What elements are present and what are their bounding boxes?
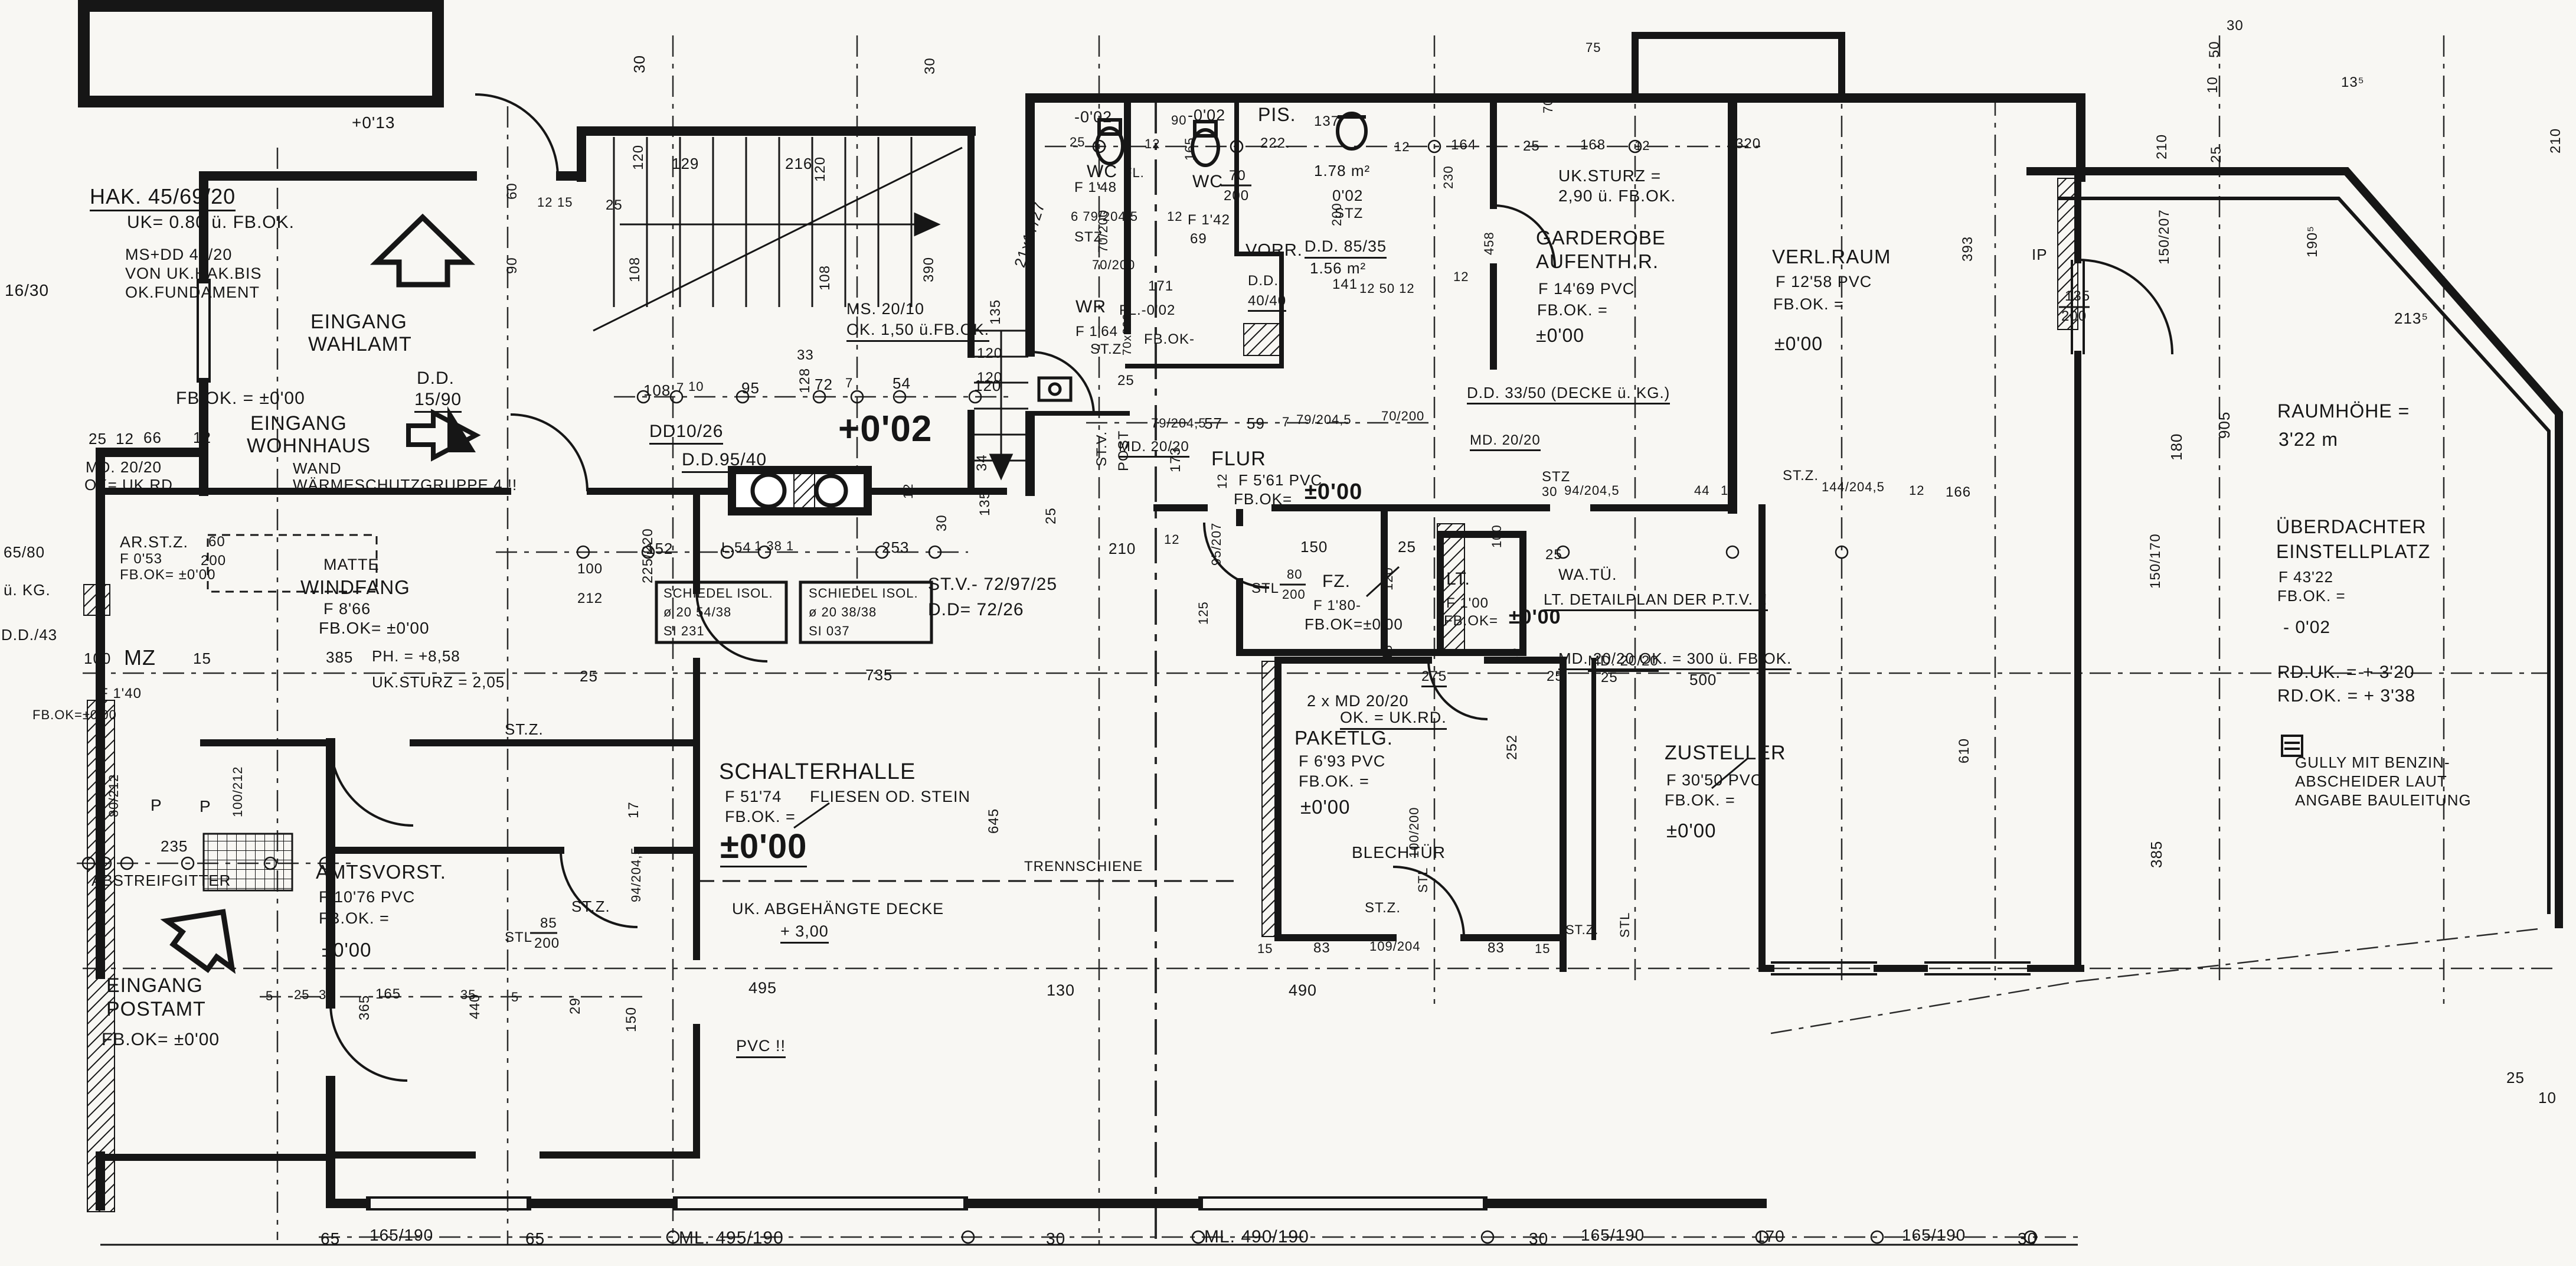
plan-label-30: 30 xyxy=(923,57,937,74)
plan-label-200: 200 xyxy=(2061,309,2087,324)
plan-label-16-30: 16/30 xyxy=(5,282,49,299)
plan-label-0-00: ±0'00 xyxy=(1305,481,1362,504)
plan-label-0-02: - 0'02 xyxy=(2283,619,2330,637)
plan-label-lt: LT. xyxy=(1446,570,1470,589)
plan-label-15: 15 xyxy=(1535,942,1550,955)
plan-label-200: 200 xyxy=(1224,189,1249,203)
plan-label-33: 33 xyxy=(797,348,814,363)
plan-label-matte: MATTE xyxy=(323,557,380,573)
plan-label-fliesen-od-stein: FLIESEN OD. STEIN xyxy=(810,789,970,805)
plan-label-17: 17 xyxy=(627,801,641,818)
plan-label-12-50-12: 12 50 12 xyxy=(1359,282,1415,295)
plan-label-365: 365 xyxy=(358,995,372,1020)
plan-label-stl: STL xyxy=(505,931,532,945)
plan-label-610: 610 xyxy=(1957,738,1972,763)
plan-label-210: 210 xyxy=(2155,134,2169,159)
plan-label-25: 25 xyxy=(2506,1070,2525,1086)
plan-label-100-200: 100/200 xyxy=(1408,807,1421,858)
plan-label-495: 495 xyxy=(748,980,777,997)
plan-label-390: 390 xyxy=(922,257,936,282)
plan-label-wand: WAND xyxy=(293,461,341,477)
plan-label-150-170: 150/170 xyxy=(2149,533,2163,589)
plan-label-12: 12 xyxy=(1634,139,1650,152)
plan-label-252: 252 xyxy=(1505,735,1519,760)
plan-label-125: 125 xyxy=(1197,601,1210,625)
plan-label-12: 12 xyxy=(1167,210,1182,223)
plan-label-275: 275 xyxy=(1421,670,1447,687)
plan-label-25: 25 xyxy=(1398,539,1416,555)
plan-label-einstellplatz: EINSTELLPLATZ xyxy=(2276,542,2430,562)
plan-label-72: 72 xyxy=(815,377,833,393)
plan-label-645: 645 xyxy=(987,808,1001,834)
plan-label-uk-sturz: UK.STURZ = xyxy=(1558,168,1661,185)
plan-label-12: 12 xyxy=(1216,474,1229,489)
plan-label-135: 135 xyxy=(989,299,1003,325)
plan-label-f-8-66: F 8'66 xyxy=(323,601,371,618)
plan-label-166: 166 xyxy=(1946,485,1971,500)
plan-label-54: 54 xyxy=(893,376,911,391)
plan-label-144-204-5: 144/204,5 xyxy=(1822,481,1885,494)
plan-label-wc: WC xyxy=(1087,163,1117,181)
plan-label-490: 490 xyxy=(1289,983,1317,999)
plan-label-94-204-5: 94/204,5 xyxy=(1564,484,1620,497)
plan-label-230: 230 xyxy=(1442,165,1455,189)
plan-label-ü-kg: ü. KG. xyxy=(4,582,51,598)
plan-label-120: 120 xyxy=(977,347,1002,361)
plan-label-141: 141 xyxy=(1332,278,1358,292)
plan-label-pis: PIS. xyxy=(1258,105,1296,125)
plan-label-wr: WR xyxy=(1075,298,1106,316)
plan-label-200: 200 xyxy=(1331,203,1343,226)
plan-label-f-1-00: F 1'00 xyxy=(1446,596,1489,611)
plan-label-von-uk-hak-bis: VON UK.HAK.BIS xyxy=(125,266,262,282)
plan-label-f-14-69-pvc: F 14'69 PVC xyxy=(1538,281,1634,298)
plan-label-si-037: SI 037 xyxy=(809,625,850,638)
plan-label-fb-ok: FB.OK. = xyxy=(319,911,390,927)
plan-label-10: 10 xyxy=(2206,76,2220,93)
plan-label-fb-ok: FB.OK- xyxy=(1144,332,1195,347)
plan-label-210: 210 xyxy=(2549,128,2563,154)
plan-label-0-00: ±0'00 xyxy=(1509,607,1561,628)
plan-label-7: 7 xyxy=(676,381,684,394)
plan-label-st-v-72-97-25: ST.V.- 72/97/25 xyxy=(928,576,1057,594)
plan-label-d-d: D.D. xyxy=(1248,274,1279,288)
plan-label-fb-ok: FB.OK. = xyxy=(1537,302,1608,319)
plan-label-15: 15 xyxy=(557,196,573,209)
plan-label-25: 25 xyxy=(2209,146,2224,163)
plan-label-f-30-50-pvc: F 30'50 PVC xyxy=(1666,772,1763,789)
plan-label-25: 25 xyxy=(1547,670,1564,684)
plan-label-120: 120 xyxy=(813,156,828,182)
plan-label-30: 30 xyxy=(1542,485,1557,498)
plan-label-stz: STZ xyxy=(1542,470,1570,484)
plan-label-post: POST xyxy=(1117,430,1131,471)
plan-label-st-z: ST.Z. xyxy=(571,899,610,915)
plan-label-f-1-40: F 1'40 xyxy=(99,687,142,701)
plan-label-190: 190⁵ xyxy=(2306,226,2320,257)
plan-label-70-200: 70/200 xyxy=(1092,259,1135,272)
plan-label-200: 200 xyxy=(201,554,226,568)
plan-label-165: 165 xyxy=(1184,137,1197,161)
plan-label-170: 170 xyxy=(1756,1228,1785,1245)
plan-label-69: 69 xyxy=(1190,232,1207,246)
plan-label-fb-ok-0-00: FB.OK= ±0'00 xyxy=(319,620,430,637)
plan-label-79-204-5: 79/204,5 xyxy=(1296,413,1352,426)
plan-label-0-00: ±0'00 xyxy=(1774,334,1823,354)
plan-label-253: 253 xyxy=(882,540,909,556)
plan-label-440: 440 xyxy=(468,994,482,1019)
plan-label-94-204-5: 94/204,5 xyxy=(630,847,643,902)
plan-label-überdachter: ÜBERDACHTER xyxy=(2276,517,2427,537)
plan-label-25: 25 xyxy=(606,198,623,213)
plan-label-ms-dd-45-20: MS+DD 45/20 xyxy=(125,247,232,263)
plan-label-25: 25 xyxy=(89,431,107,447)
plan-label-59: 59 xyxy=(1247,416,1265,432)
plan-label-66: 66 xyxy=(143,430,162,446)
labels-layer: HAK. 45/69/20UK= 0.80 ü. FB.OK.MS+DD 45/… xyxy=(0,0,2576,1266)
plan-label-210: 210 xyxy=(1109,541,1136,557)
plan-label-vorr: VORR. xyxy=(1245,242,1303,260)
plan-label-79-204-5: 79/204,5 xyxy=(1151,417,1207,430)
plan-label-65: 65 xyxy=(321,1231,340,1248)
plan-label-st-z: ST.Z. xyxy=(1365,901,1401,915)
plan-label-34: 34 xyxy=(975,454,989,471)
floor-plan-page: HAK. 45/69/20UK= 0.80 ü. FB.OK.MS+DD 45/… xyxy=(0,0,2576,1266)
plan-label-70-200: 70/200 xyxy=(1097,210,1110,253)
plan-label-5: 5 xyxy=(511,991,519,1004)
plan-label-165-190: 165/190 xyxy=(1902,1227,1966,1244)
plan-label-fb-ok-0-00: FB.OK=±0'00 xyxy=(1305,616,1403,632)
plan-label-0-02: 0'02 xyxy=(1332,188,1363,204)
plan-label-amtsvorst: AMTSVORST. xyxy=(316,862,446,882)
plan-label-12: 12 xyxy=(1394,141,1410,154)
plan-label-5: 5 xyxy=(266,990,273,1003)
plan-label-168: 168 xyxy=(1580,138,1606,152)
plan-label-flur: FLUR xyxy=(1211,449,1266,469)
plan-label-0-00: ±0'00 xyxy=(1666,821,1716,841)
plan-label-stl: STL xyxy=(1619,912,1632,938)
plan-label-d-d-33-50-decke-ü-kg: D.D. 33/50 (DECKE ü. KG.) xyxy=(1467,385,1670,404)
plan-label-30: 30 xyxy=(1529,1231,1548,1248)
plan-label-165-190: 165/190 xyxy=(370,1227,433,1244)
plan-label-25: 25 xyxy=(1601,671,1618,685)
plan-label-12: 12 xyxy=(1145,138,1160,151)
plan-label-135: 135 xyxy=(2065,289,2090,304)
plan-label-fb-ok-0-00: FB.OK. = ±0'00 xyxy=(176,390,305,408)
plan-label-165: 165 xyxy=(375,987,401,1001)
plan-label-st-z: ST.Z xyxy=(1090,342,1122,357)
plan-label-3-00: + 3,00 xyxy=(780,924,829,944)
plan-label-70: 70 xyxy=(1229,169,1246,183)
plan-label-12: 12 xyxy=(1453,270,1469,283)
plan-label-paketlg: PAKETLG. xyxy=(1294,728,1393,748)
plan-label-0-02: +0'02 xyxy=(838,410,932,448)
plan-label-md-20-20: MD. 20/20 xyxy=(1588,654,1659,672)
plan-label-ar-st-z: AR.ST.Z. xyxy=(120,534,188,551)
plan-label-129: 129 xyxy=(672,156,699,172)
plan-label-120: 120 xyxy=(1382,567,1395,590)
plan-label-fb-ok: FB.OK. = xyxy=(725,809,796,825)
plan-label-1-56-m: 1.56 m² xyxy=(1310,260,1366,276)
plan-label-ok-uk-rd: OK= UK.RD xyxy=(84,477,173,493)
plan-label-f-6-93-pvc: F 6'93 PVC xyxy=(1299,753,1385,770)
plan-label-90: 90 xyxy=(505,257,519,274)
plan-label-rd-ok-3-38: RD.OK. = + 3'38 xyxy=(2277,687,2415,706)
plan-label-fb-ok: FB.OK= xyxy=(1444,614,1498,628)
plan-label-25: 25 xyxy=(1507,648,1520,663)
plan-label-rd-uk-3-20: RD.UK. = + 3'20 xyxy=(2277,664,2415,682)
plan-label-10: 10 xyxy=(2538,1090,2557,1106)
plan-label-f-10-76-pvc: F 10'76 PVC xyxy=(319,889,415,906)
plan-label-st-z: ST.Z. xyxy=(505,722,544,738)
plan-label-57: 57 xyxy=(1204,416,1222,432)
plan-label-fz: FZ. xyxy=(1322,573,1351,591)
plan-label-garderobe: GARDEROBE xyxy=(1536,228,1666,248)
plan-label-7: 7 xyxy=(845,377,853,390)
plan-label-120: 120 xyxy=(974,378,1001,394)
plan-label-30: 30 xyxy=(2227,19,2244,33)
plan-label-raumhöhe: RAUMHÖHE = xyxy=(2277,402,2410,421)
plan-label-md-20-20: MD. 20/20 xyxy=(86,459,162,475)
plan-label-15: 15 xyxy=(193,651,211,667)
plan-label-50: 50 xyxy=(2208,41,2222,58)
plan-label-uk-abgehängte-decke: UK. ABGEHÄNGTE DECKE xyxy=(732,901,944,918)
plan-label-f-1-64: F 1'64 xyxy=(1075,325,1118,339)
plan-label-80: 80 xyxy=(1287,568,1302,581)
plan-label-eingang: EINGANG xyxy=(106,975,203,996)
plan-label-st-z: ST.Z. xyxy=(1565,924,1598,937)
plan-label-si-231: SI 231 xyxy=(663,625,705,638)
plan-label-12: 12 xyxy=(1164,533,1179,546)
plan-label-212: 212 xyxy=(577,592,603,606)
plan-label-12: 12 xyxy=(116,431,134,447)
plan-label-mz: MZ xyxy=(124,647,156,669)
plan-label-uk-sturz-2-05: UK.STURZ = 2,05 xyxy=(372,674,505,690)
plan-label-d-d-43: D.D./43 xyxy=(1,627,57,643)
plan-label-120: 120 xyxy=(632,145,646,170)
plan-label-95-207: 95/207 xyxy=(1210,523,1223,566)
plan-label-f-1-42: F 1'42 xyxy=(1188,213,1230,227)
plan-label-320: 320 xyxy=(1735,137,1761,151)
plan-label-44: 44 xyxy=(1694,484,1709,497)
plan-label-150: 150 xyxy=(1300,539,1328,555)
plan-label-83: 83 xyxy=(1488,941,1505,955)
plan-label-30: 30 xyxy=(935,514,949,531)
plan-label-85: 85 xyxy=(540,916,557,931)
plan-label-150: 150 xyxy=(625,1007,639,1032)
plan-label-200: 200 xyxy=(534,937,560,951)
plan-label-20-54-38: ø 20 54/38 xyxy=(663,606,731,619)
plan-label-verl-raum: VERL.RAUM xyxy=(1772,247,1891,267)
plan-label-108: 108 xyxy=(628,257,642,282)
plan-label-fb-ok-0-00: FB.OK= ±0'00 xyxy=(102,1031,220,1049)
plan-label-fb-ok: FB.OK. = xyxy=(2277,588,2346,604)
plan-label-29: 29 xyxy=(568,997,583,1014)
plan-label-ip: IP xyxy=(2032,247,2048,263)
plan-label-70x200: 70x200 xyxy=(1122,313,1133,355)
plan-label-wohnhaus: WOHNHAUS xyxy=(247,436,371,456)
plan-label-md-20-20: MD. 20/20 xyxy=(1470,433,1541,451)
plan-label-30: 30 xyxy=(2018,1231,2037,1248)
plan-label-60: 60 xyxy=(505,182,519,200)
plan-label-angabe-bauleitung: ANGABE BAULEITUNG xyxy=(2295,792,2472,808)
plan-label-137: 137 xyxy=(1314,115,1339,129)
plan-label-150-207: 150/207 xyxy=(2157,209,2172,265)
plan-label-458: 458 xyxy=(1483,231,1496,255)
plan-label-100: 100 xyxy=(84,651,111,667)
plan-label-dd10-26: DD10/26 xyxy=(649,423,723,445)
plan-label-abstreifgitter: ABSTREIFGITTER xyxy=(91,873,231,889)
plan-label-ok-1-50-ü-fb-ok: OK. 1,50 ü.FB.OK. xyxy=(846,322,989,342)
plan-label-hak-45-69-20: HAK. 45/69/20 xyxy=(90,186,236,211)
plan-label-171: 171 xyxy=(1148,279,1173,293)
plan-label-12: 12 xyxy=(1721,484,1736,497)
plan-label-500: 500 xyxy=(1689,672,1717,688)
plan-label-35: 35 xyxy=(319,988,334,1001)
plan-label-wärmeschutzgruppe-4: WÄRMESCHUTZGRUPPE 4 !! xyxy=(293,477,517,493)
plan-label-ml-490-190: ML. 490/190 xyxy=(1204,1228,1309,1247)
plan-label-blechtür: BLECHTÜR xyxy=(1352,844,1446,862)
plan-label-15: 15 xyxy=(1381,645,1394,660)
plan-label-70: 70 xyxy=(1542,98,1555,113)
plan-label-stl: STL xyxy=(1417,867,1430,893)
plan-label-25: 25 xyxy=(1117,374,1135,388)
plan-label-eingang: EINGANG xyxy=(310,312,407,332)
plan-label-25: 25 xyxy=(1070,136,1085,149)
plan-label-lt-detailplan-der-p-t-v: LT. DETAILPLAN DER P.T.V. !! xyxy=(1544,592,1768,611)
plan-label-f-51-74: F 51'74 xyxy=(725,789,782,805)
plan-label-2-90-ü-fb-ok: 2,90 ü. FB.OK. xyxy=(1558,188,1676,205)
plan-label-213: 213⁵ xyxy=(2394,311,2428,327)
plan-label-235: 235 xyxy=(161,838,188,854)
plan-label-windfang: WINDFANG xyxy=(300,577,410,598)
plan-label-21x17-27: 21x17/27 xyxy=(1012,200,1048,270)
plan-label-abscheider-laut: ABSCHEIDER LAUT xyxy=(2295,774,2447,789)
plan-label-fb-ok-0-00: FB.OK= ±0'00 xyxy=(120,568,216,582)
plan-label-ph-8-58: PH. = +8,58 xyxy=(372,648,460,664)
plan-label-12: 12 xyxy=(537,196,553,209)
plan-label-postamt: POSTAMT xyxy=(106,999,206,1020)
plan-label-20-38-38: ø 20 38/38 xyxy=(809,606,877,619)
plan-label-1-78-m: 1.78 m² xyxy=(1314,163,1370,179)
plan-label-109-204: 109/204 xyxy=(1369,940,1421,953)
plan-label-735: 735 xyxy=(865,667,893,683)
plan-label-ml-495-190: ML. 495/190 xyxy=(679,1229,784,1248)
plan-label-0-00: ±0'00 xyxy=(1536,326,1584,345)
plan-label-2-x-md-20-20: 2 x MD 20/20 xyxy=(1307,693,1409,710)
plan-label-aufenth-r: AUFENTH.R. xyxy=(1536,252,1659,272)
plan-label-st-v: ST.V. xyxy=(1095,431,1109,466)
plan-label-pvc: PVC !! xyxy=(736,1038,786,1058)
plan-label-128: 128 xyxy=(798,368,812,393)
plan-label-uk-0-80-ü-fb-ok: UK= 0.80 ü. FB.OK. xyxy=(127,214,295,232)
plan-label-1-38-1: 1 38 1 xyxy=(754,540,794,553)
plan-label-95: 95 xyxy=(741,380,760,396)
plan-label-75: 75 xyxy=(1586,41,1601,54)
plan-label-200: 200 xyxy=(1282,588,1306,601)
plan-label-173: 173 xyxy=(1169,447,1183,472)
plan-label-80-212: 80/212 xyxy=(107,774,120,817)
plan-label-385: 385 xyxy=(2149,841,2165,868)
plan-label-d-d-95-40: D.D.95/40 xyxy=(682,451,767,473)
plan-label-f-12-58-pvc: F 12'58 PVC xyxy=(1776,274,1872,291)
plan-label-164: 164 xyxy=(1451,138,1476,152)
plan-label-7: 7 xyxy=(1282,416,1290,429)
plan-label-108: 108 xyxy=(818,265,832,291)
plan-label-p: P xyxy=(151,797,162,814)
plan-label-12: 12 xyxy=(902,484,915,499)
plan-label-25: 25 xyxy=(1523,139,1540,154)
plan-label-0-02: -0'02 xyxy=(1188,107,1225,124)
plan-label-eingang: EINGANG xyxy=(250,413,347,434)
plan-label-222: 222. xyxy=(1260,136,1290,151)
plan-label-13: 13⁵ xyxy=(2341,76,2365,90)
plan-label-st-z: ST.Z. xyxy=(1783,469,1819,483)
plan-label-25: 25 xyxy=(580,668,598,684)
plan-label-70-200: 70/200 xyxy=(1381,410,1424,423)
plan-label-65: 65 xyxy=(525,1231,545,1248)
plan-label-65-80: 65/80 xyxy=(4,544,45,560)
plan-label-25: 25 xyxy=(1044,507,1058,524)
plan-label-15-90: 15/90 xyxy=(414,391,462,413)
plan-label-30: 30 xyxy=(632,55,648,73)
plan-label-393: 393 xyxy=(1961,236,1975,262)
plan-label-90: 90 xyxy=(1171,114,1186,127)
plan-label-gully-mit-benzin: GULLY MIT BENZIN- xyxy=(2295,755,2450,771)
plan-label-108: 108 xyxy=(643,383,671,399)
plan-label-30: 30 xyxy=(1046,1231,1065,1248)
plan-label-d-d: D.D. xyxy=(417,370,455,388)
plan-label-wa-tü: WA.TÜ. xyxy=(1558,567,1617,583)
plan-label-83: 83 xyxy=(1313,941,1331,955)
plan-label-0-02: -0'02 xyxy=(1074,109,1112,126)
plan-label-10: 10 xyxy=(688,380,704,393)
plan-label-0-00: ±0'00 xyxy=(1300,797,1350,817)
plan-label-165-190: 165/190 xyxy=(1581,1227,1645,1244)
plan-label-d-d-72-26: D.D= 72/26 xyxy=(928,601,1024,619)
plan-label-3-22-m: 3'22 m xyxy=(2278,430,2338,449)
plan-label-100: 100 xyxy=(1490,524,1503,548)
plan-label-fb-ok: FB.OK. = xyxy=(1299,774,1369,790)
plan-label-fb-ok: FB.OK. = xyxy=(1773,296,1844,313)
plan-label-schiedel-isol: SCHIEDEL ISOL. xyxy=(809,587,918,600)
plan-label-40-40: 40/40 xyxy=(1248,294,1286,312)
plan-label-fb-ok-0-00: FB.OK=±0'00 xyxy=(32,709,117,722)
plan-label-zusteller: ZUSTELLER xyxy=(1665,743,1786,763)
plan-label-f-0-53: F 0'53 xyxy=(120,552,162,566)
plan-label-0-00: ±0'00 xyxy=(720,829,807,867)
plan-label-stl: STL xyxy=(1251,582,1279,596)
plan-label-wahlamt: WAHLAMT xyxy=(308,334,412,355)
plan-label-schalterhalle: SCHALTERHALLE xyxy=(719,761,916,784)
plan-label-0-00: ±0'00 xyxy=(322,940,371,960)
plan-label-f-1-48: F 1'48 xyxy=(1074,181,1117,195)
plan-label-fb-ok: FB.OK= xyxy=(1234,491,1292,507)
plan-label-12: 12 xyxy=(193,430,211,446)
plan-label-12: 12 xyxy=(1909,484,1924,497)
plan-label-180: 180 xyxy=(2169,433,2185,461)
plan-label-100-212: 100/212 xyxy=(231,766,244,817)
plan-label-60: 60 xyxy=(208,535,225,549)
plan-label-schiedel-isol: SCHIEDEL ISOL. xyxy=(663,587,773,600)
plan-label-d-d-85-35: D.D. 85/35 xyxy=(1305,239,1387,259)
plan-label-15: 15 xyxy=(1257,942,1273,955)
plan-label-130: 130 xyxy=(1047,983,1075,999)
plan-label-wc: WC xyxy=(1192,173,1223,191)
plan-label-905: 905 xyxy=(2217,412,2232,439)
plan-label-25: 25 xyxy=(294,988,309,1001)
plan-label-fl: FL. xyxy=(1124,167,1145,180)
